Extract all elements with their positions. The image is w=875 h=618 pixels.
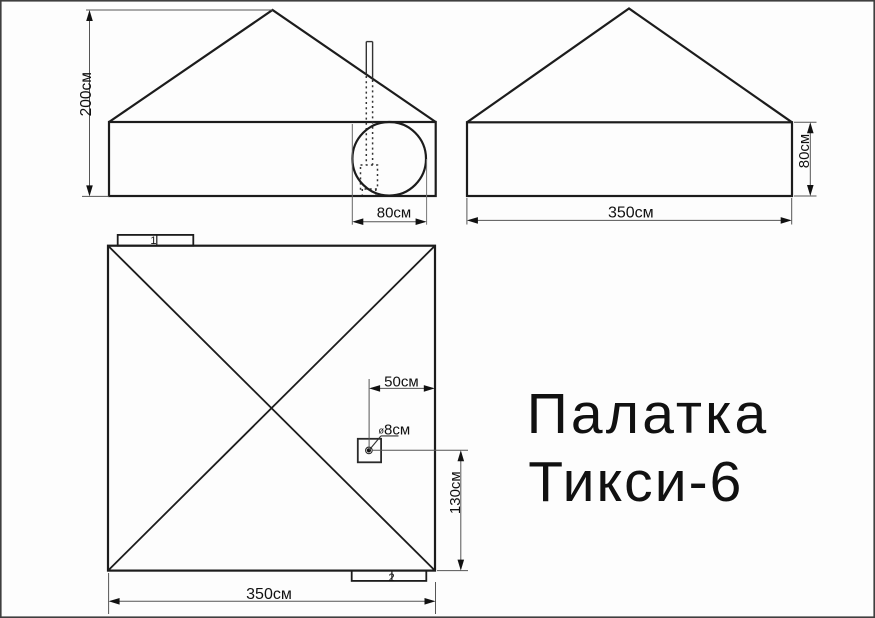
- svg-text:130см: 130см: [447, 471, 464, 514]
- svg-text:80см: 80см: [796, 134, 813, 169]
- svg-text:50см: 50см: [384, 373, 419, 390]
- svg-text:Тикси-6: Тикси-6: [528, 450, 743, 514]
- svg-text:350см: 350см: [608, 205, 654, 222]
- svg-text:80см: 80см: [377, 204, 412, 221]
- svg-text:Палатка: Палатка: [527, 382, 770, 446]
- svg-text:350см: 350см: [246, 586, 292, 603]
- svg-text:2: 2: [388, 572, 394, 584]
- svg-text:200см: 200см: [78, 72, 95, 116]
- svg-text:1: 1: [150, 235, 156, 247]
- svg-text:ø8см: ø8см: [379, 422, 411, 439]
